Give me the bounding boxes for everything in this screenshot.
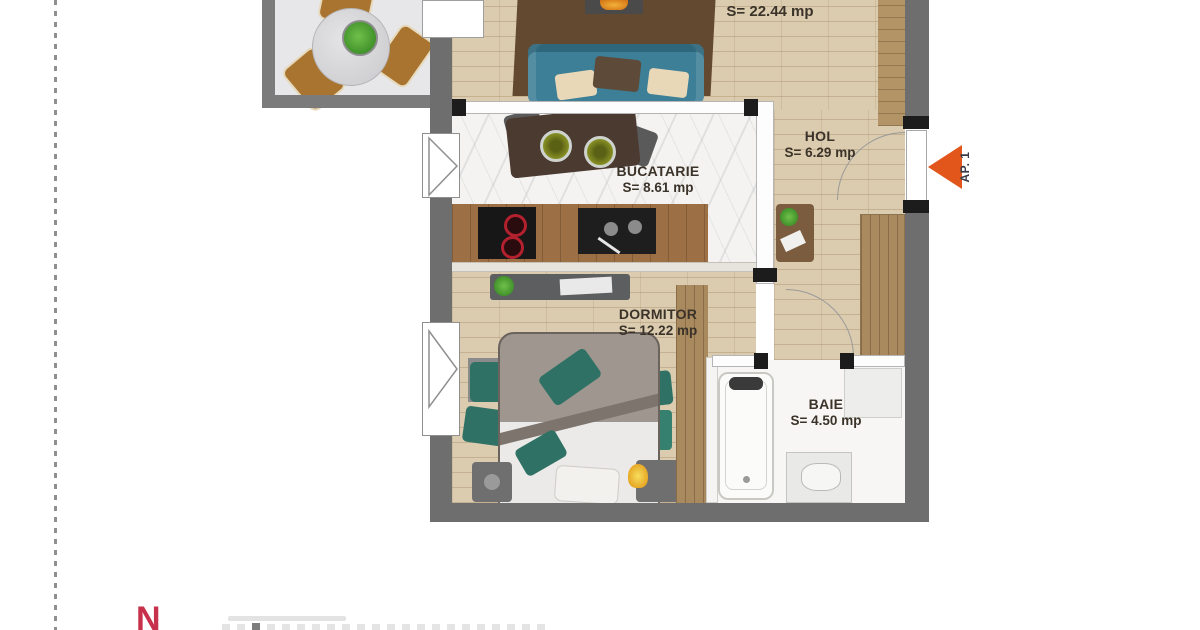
entrance-door [906, 130, 927, 202]
plant-pot [494, 276, 514, 296]
bathtub-drain [743, 476, 750, 483]
bedroom-window [422, 322, 460, 436]
door-jamb [903, 116, 929, 129]
plant-pot [342, 20, 378, 56]
wall-left [430, 198, 452, 322]
burner [504, 214, 527, 237]
cropped-legend [228, 616, 346, 621]
fireplace-flame [600, 0, 628, 10]
bed-pillow-white [555, 466, 619, 504]
wall-bottom [430, 503, 929, 522]
room-name: BAIE [766, 396, 886, 413]
balcony-door [422, 0, 484, 38]
door-jamb [840, 353, 854, 369]
cropped-legend-mark-dark [252, 623, 260, 630]
window-swing-icon [423, 323, 461, 437]
washbasin-bowl [801, 463, 841, 491]
balcony-wall-bottom [262, 95, 432, 108]
cropped-legend-marks [222, 624, 552, 630]
room-name: BUCATARIE [588, 163, 728, 180]
plant-pot [780, 208, 798, 226]
burner [501, 236, 524, 259]
washbasin [786, 452, 852, 503]
entrance-arrow-icon [928, 145, 962, 189]
wall-kitchen-bedroom [452, 262, 756, 272]
balcony-wall-left [262, 0, 275, 108]
room-label-bucatarie: BUCATARIE S= 8.61 mp [588, 163, 728, 197]
door-jamb [753, 268, 777, 282]
window-swing-icon [423, 134, 461, 199]
bathtub [718, 372, 774, 500]
hall-wardrobe [860, 214, 905, 356]
wall-right [905, 0, 929, 126]
sofa-pillow [554, 69, 597, 100]
room-name: HOL [760, 128, 880, 145]
floor-plan: S= 22.44 mp BUCATARIE S= 8.61 mp [0, 0, 1200, 630]
door-jamb [754, 353, 768, 369]
bathtub-headrest [729, 377, 763, 390]
room-area: S= 12.22 mp [588, 323, 728, 339]
kitchen-window [422, 133, 460, 198]
entrance-label: AP. 1 [958, 142, 974, 192]
living-cabinet [878, 0, 905, 126]
room-area: S= 22.44 mp [700, 3, 840, 21]
wall-right [905, 202, 929, 520]
sofa-pillow-dark [592, 56, 641, 93]
partition-living-kitchen [452, 101, 758, 114]
room-area: S= 8.61 mp [588, 180, 728, 196]
wall-hall-bathroom [852, 355, 905, 367]
plate [540, 130, 572, 162]
compass-north-label: N [136, 602, 161, 630]
sofa-pillow [647, 68, 690, 99]
sink-bowl [604, 222, 618, 236]
door-jamb [903, 200, 929, 213]
room-label-hol: HOL S= 6.29 mp [760, 128, 880, 162]
room-label-living: S= 22.44 mp [700, 3, 840, 21]
sink-bowl [628, 220, 642, 234]
room-name: DORMITOR [588, 306, 728, 323]
door-jamb [744, 99, 758, 116]
wall-bedroom-bathroom [706, 357, 718, 503]
nightstand-lamp-lit [628, 464, 648, 488]
room-label-baie: BAIE S= 4.50 mp [766, 396, 886, 430]
bathtub-inner [725, 380, 767, 490]
room-label-dormitor: DORMITOR S= 12.22 mp [588, 306, 728, 340]
room-area: S= 4.50 mp [766, 413, 886, 429]
door-jamb [452, 99, 466, 116]
nightstand-lamp [484, 474, 500, 490]
boundary-dashed-line [54, 0, 57, 630]
room-area: S= 6.29 mp [760, 145, 880, 161]
wall-hall-bathroom [712, 355, 758, 367]
dresser-decor [560, 277, 613, 296]
